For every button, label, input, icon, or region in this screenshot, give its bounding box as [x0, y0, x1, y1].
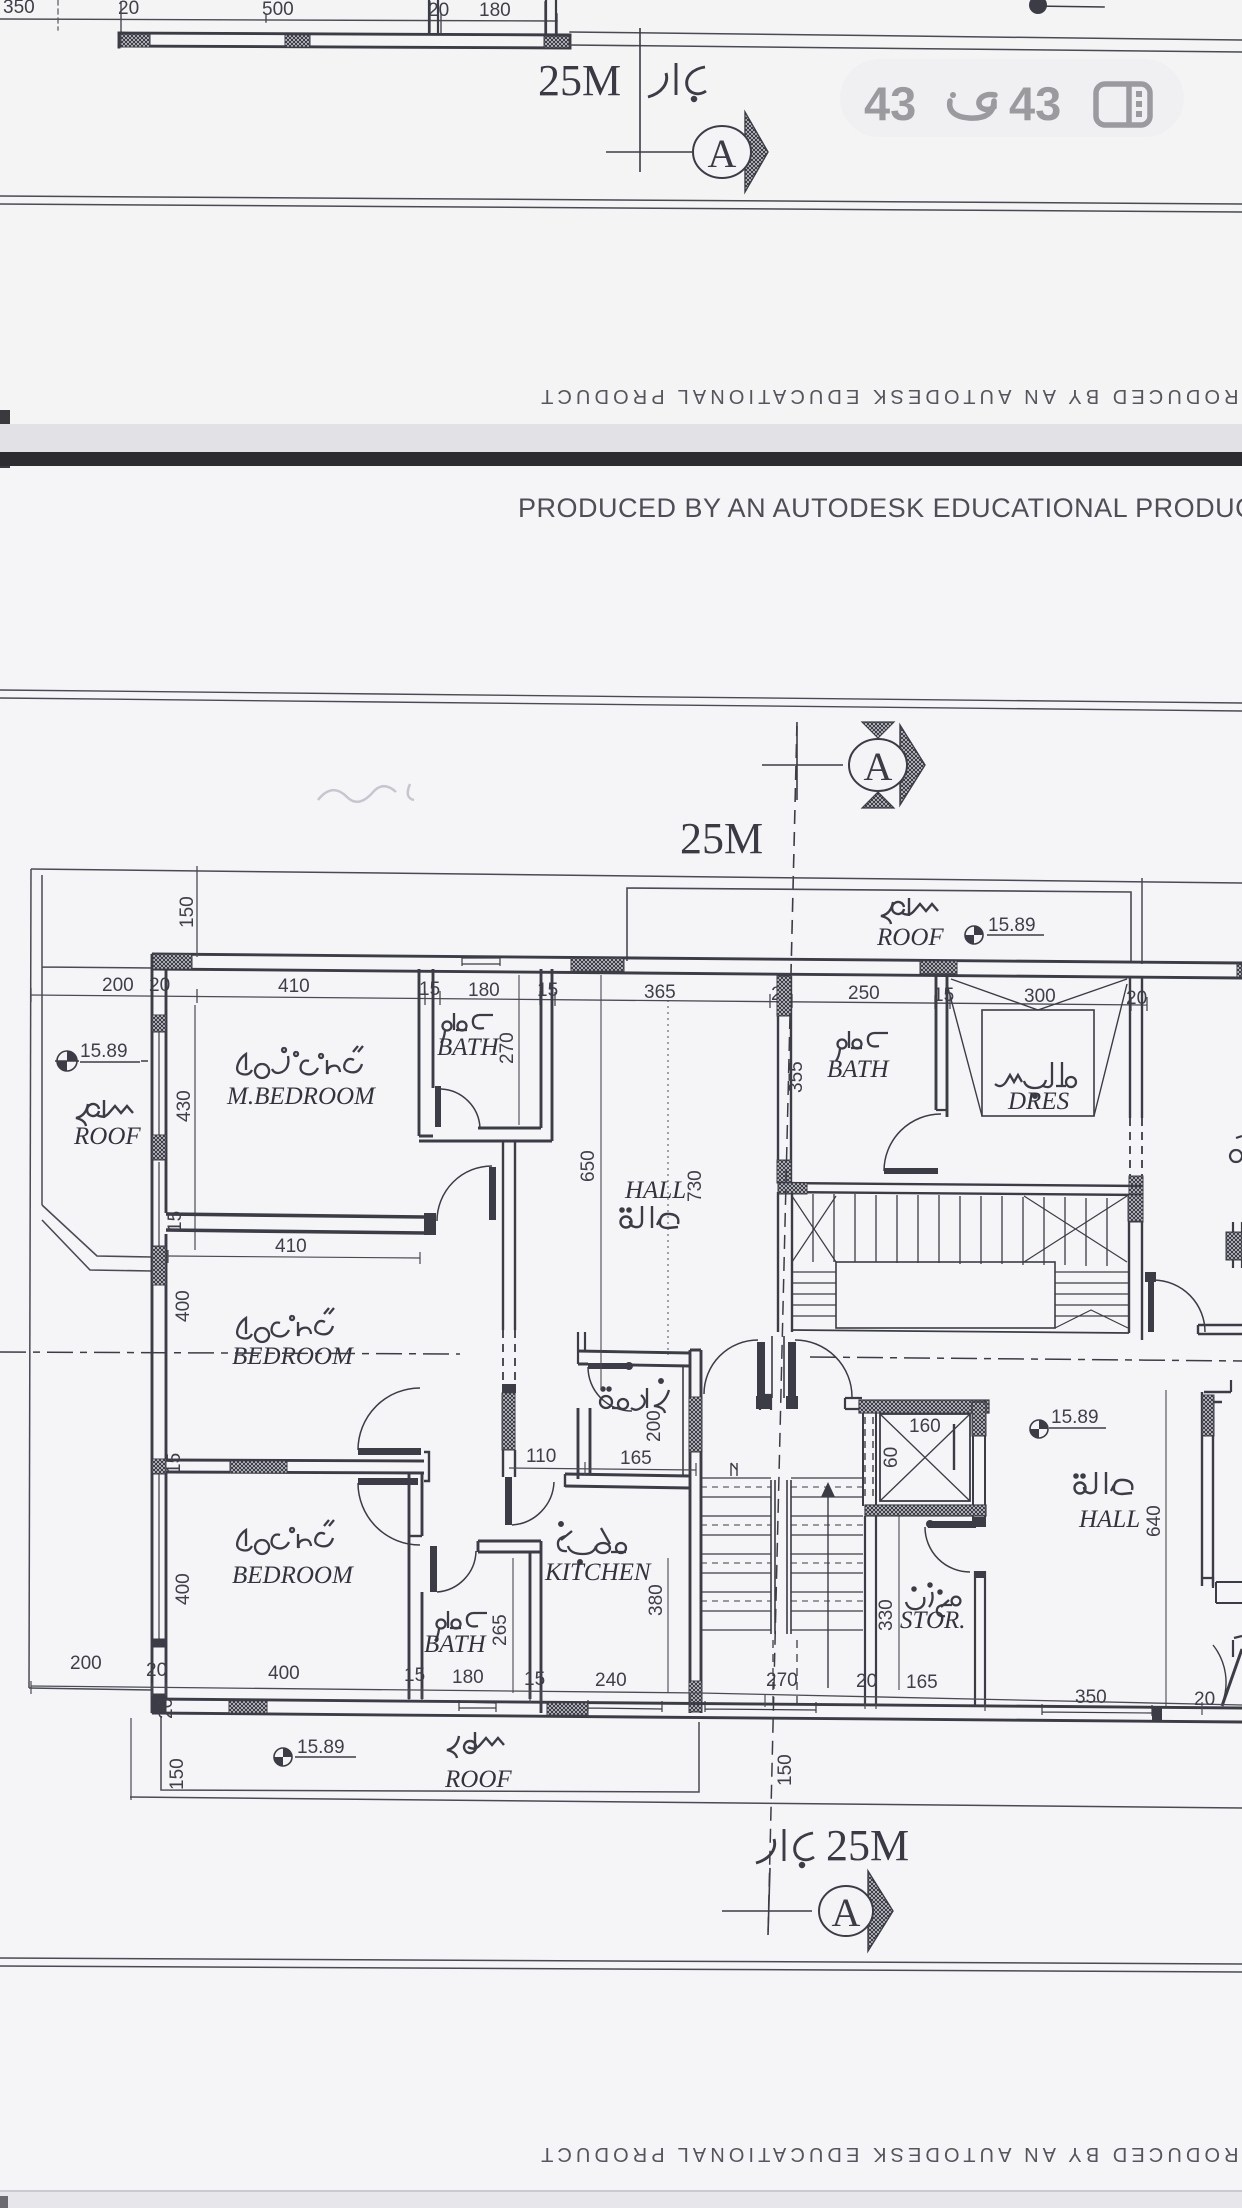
svg-text:15.89: 15.89	[297, 1737, 345, 1758]
svg-text:STOR.: STOR.	[900, 1607, 966, 1634]
svg-text:PRODUCED BY AN AUTODESK EDUCAT: PRODUCED BY AN AUTODESK EDUCATIONAL PROD…	[537, 2143, 1242, 2165]
svg-text:15.89: 15.89	[988, 915, 1036, 936]
svg-text:A: A	[832, 1890, 861, 1935]
svg-text:150: 150	[167, 1758, 188, 1790]
svg-text:400: 400	[173, 1290, 194, 1322]
svg-text:25M: 25M	[538, 56, 621, 105]
svg-text:265: 265	[490, 1614, 511, 1646]
svg-text:365: 365	[644, 982, 676, 1003]
svg-text:640: 640	[1144, 1505, 1165, 1537]
svg-text:M.BEDROOM: M.BEDROOM	[226, 1083, 376, 1110]
svg-text:160: 160	[909, 1416, 941, 1437]
svg-text:180: 180	[468, 980, 500, 1001]
svg-text:20: 20	[156, 1698, 177, 1719]
svg-text:PRODUCED BY AN AUTODESK EDUCAT: PRODUCED BY AN AUTODESK EDUCATIONAL PROD…	[537, 385, 1242, 407]
svg-text:DRES: DRES	[1007, 1088, 1070, 1115]
svg-text:BATH: BATH	[827, 1056, 891, 1083]
svg-text:15: 15	[524, 1669, 545, 1690]
svg-text:110: 110	[526, 1446, 556, 1467]
svg-text:PRODUCED BY AN AUTODESK EDUCAT: PRODUCED BY AN AUTODESK EDUCATIONAL PROD…	[518, 493, 1242, 523]
svg-text:200: 200	[102, 975, 134, 996]
svg-text:350: 350	[1075, 1687, 1107, 1708]
svg-text:20: 20	[1194, 1689, 1215, 1710]
svg-text:270: 270	[497, 1032, 518, 1064]
svg-text:150: 150	[177, 896, 198, 928]
svg-text:A: A	[864, 744, 893, 789]
svg-text:165: 165	[620, 1448, 652, 1469]
svg-text:43: 43	[1009, 77, 1061, 130]
svg-text:20: 20	[856, 1671, 877, 1692]
svg-text:HALL: HALL	[624, 1177, 686, 1204]
svg-text:250: 250	[848, 983, 880, 1004]
svg-text:430: 430	[174, 1090, 195, 1122]
svg-text:BATH: BATH	[437, 1034, 501, 1061]
svg-text:25M: 25M	[680, 814, 763, 863]
svg-text:410: 410	[278, 976, 310, 997]
svg-text:BEDROOM: BEDROOM	[232, 1562, 354, 1589]
svg-text:200: 200	[70, 1653, 102, 1674]
svg-text:43: 43	[864, 77, 916, 130]
svg-text:330: 330	[876, 1599, 897, 1631]
svg-text:180: 180	[452, 1667, 484, 1688]
svg-text:A: A	[708, 131, 737, 176]
svg-text:500: 500	[262, 0, 294, 20]
svg-text:ROOF: ROOF	[73, 1123, 141, 1150]
svg-text:25M: 25M	[826, 1821, 909, 1870]
svg-text:BEDROOM: BEDROOM	[232, 1343, 354, 1370]
svg-text:15.89: 15.89	[80, 1041, 128, 1062]
svg-text:650: 650	[578, 1150, 599, 1182]
svg-text:KITCHEN: KITCHEN	[544, 1559, 652, 1586]
svg-text:15: 15	[404, 1665, 425, 1686]
svg-text:240: 240	[595, 1670, 627, 1691]
svg-text:730: 730	[685, 1170, 706, 1202]
svg-text:200: 200	[644, 1410, 665, 1442]
svg-text:350: 350	[3, 0, 35, 18]
svg-text:165: 165	[906, 1672, 938, 1693]
svg-text:380: 380	[646, 1584, 667, 1616]
svg-text:270: 270	[766, 1670, 798, 1691]
svg-text:400: 400	[268, 1663, 300, 1684]
svg-text:300: 300	[1024, 986, 1056, 1007]
svg-text:180: 180	[479, 0, 511, 21]
svg-text:BATH: BATH	[424, 1631, 488, 1658]
svg-text:HALL: HALL	[1078, 1506, 1140, 1533]
svg-text:410: 410	[275, 1236, 307, 1257]
svg-text:15.89: 15.89	[1051, 1407, 1099, 1428]
svg-text:15: 15	[419, 979, 440, 1000]
svg-text:60: 60	[881, 1447, 902, 1468]
svg-text:400: 400	[173, 1573, 194, 1605]
svg-text:ROOF: ROOF	[876, 924, 944, 951]
svg-text:20: 20	[146, 1660, 167, 1681]
svg-text:ROOF: ROOF	[444, 1766, 512, 1793]
svg-text:150: 150	[775, 1754, 796, 1786]
